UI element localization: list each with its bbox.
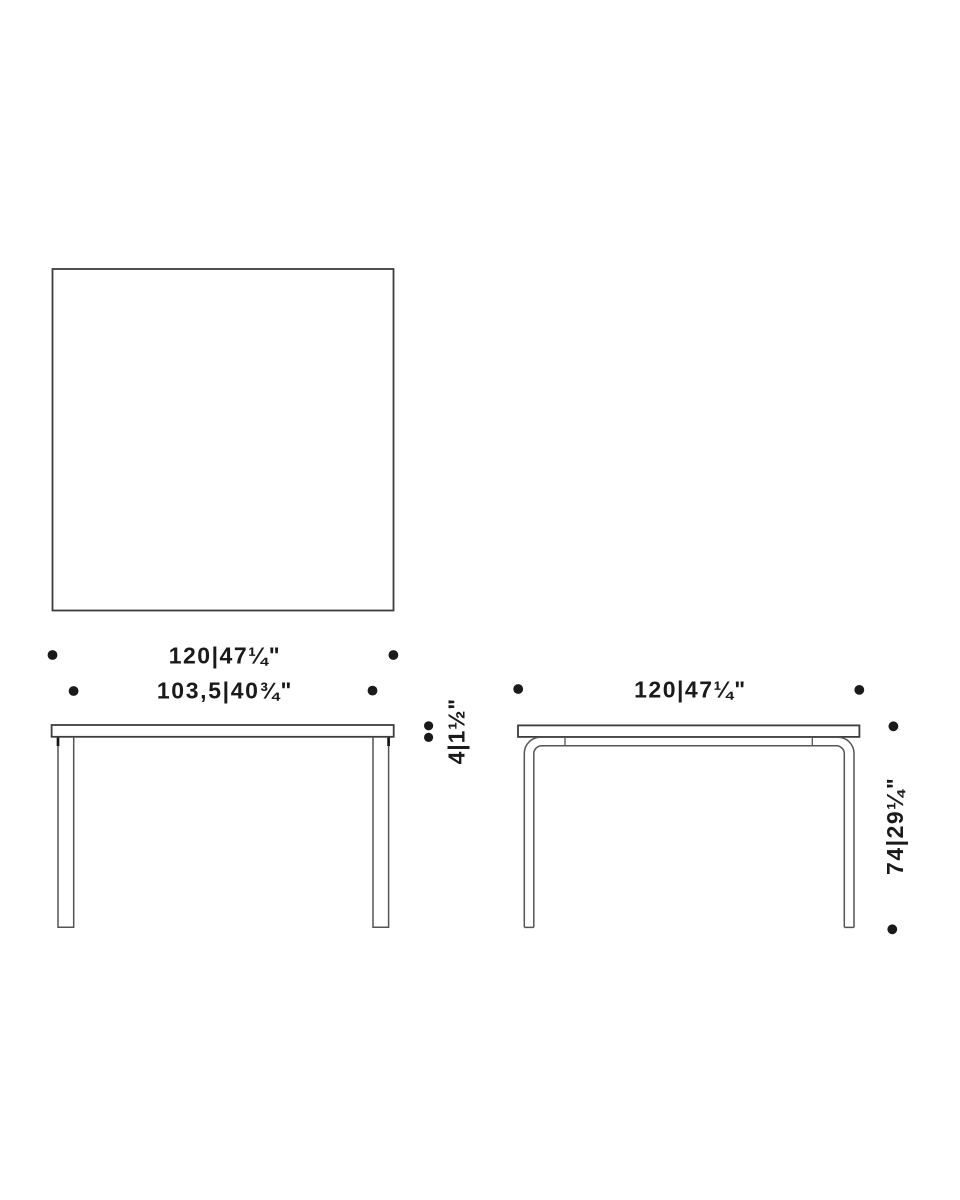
svg-text:74|29¼": 74|29¼" [882,778,908,875]
svg-text:120|47¼": 120|47¼" [169,642,280,668]
svg-text:103,5|40¾": 103,5|40¾" [157,678,292,704]
svg-text:120|47¼": 120|47¼" [634,677,745,703]
svg-text:4|1½": 4|1½" [444,699,470,765]
